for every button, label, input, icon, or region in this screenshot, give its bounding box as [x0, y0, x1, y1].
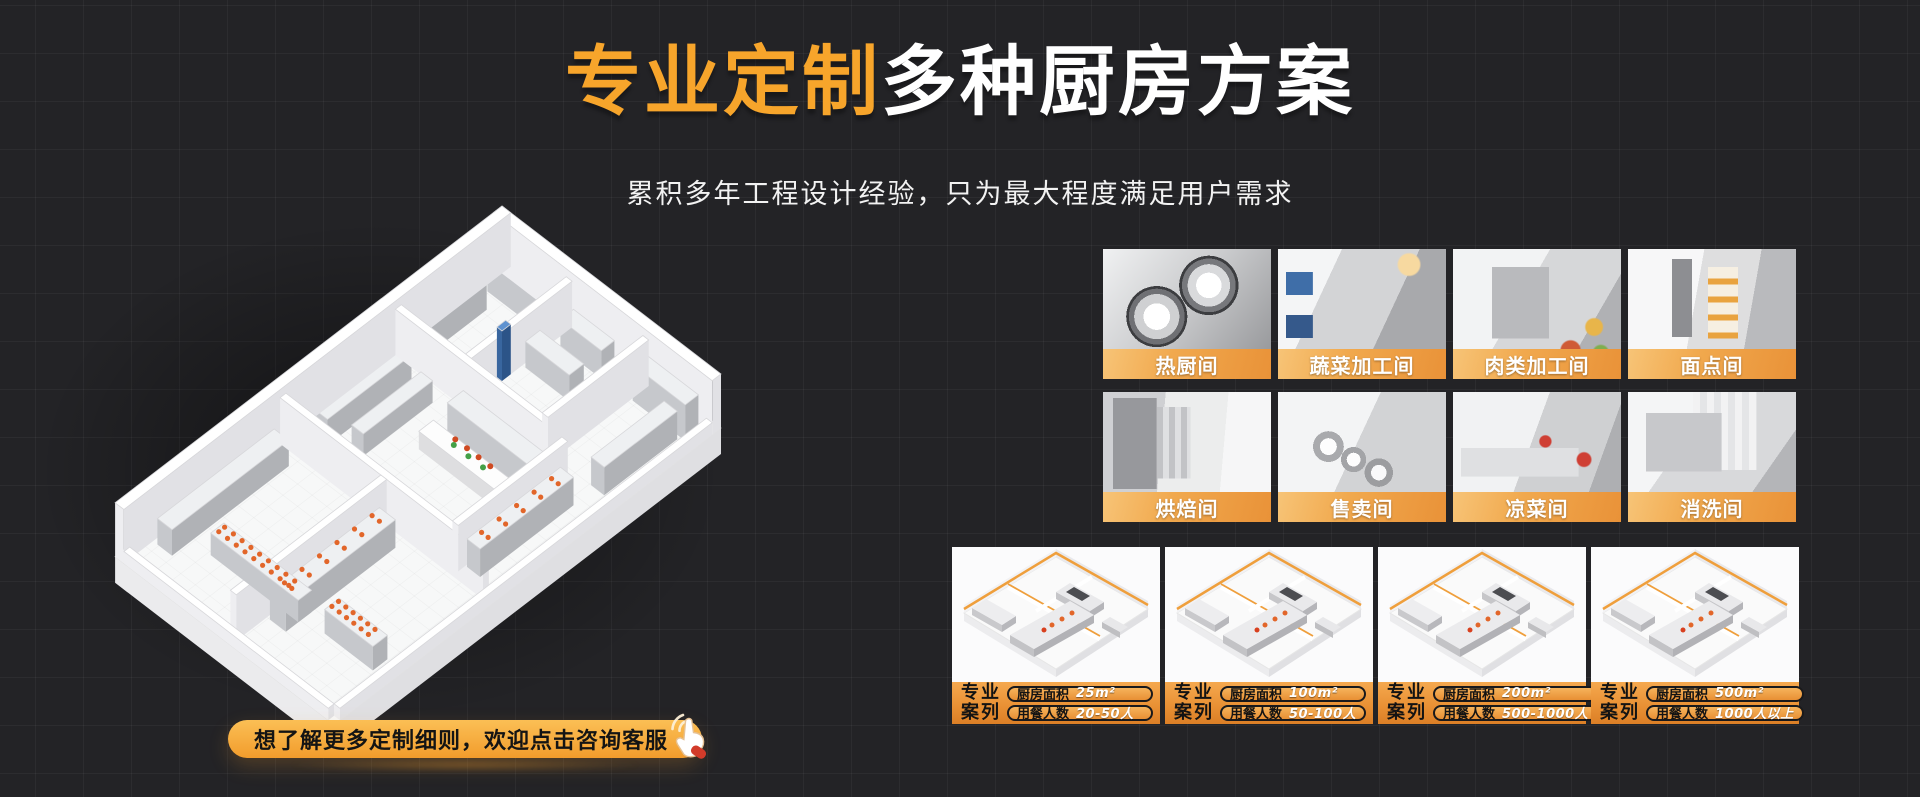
field-label: 厨房面积	[1230, 684, 1282, 703]
case-tag: 专业 案列	[1174, 683, 1214, 723]
field-label: 用餐人数	[1656, 703, 1708, 722]
case-illustration	[1165, 547, 1373, 682]
field-value: 25m²	[1076, 686, 1115, 701]
field-value: 50-100人	[1289, 703, 1356, 722]
diner-count-pill: 用餐人数 1000人以上	[1646, 705, 1804, 721]
case-bar: 专业 案列 厨房面积 100m² 用餐人数 50-100人	[1165, 682, 1373, 724]
field-label: 厨房面积	[1443, 684, 1495, 703]
room-tile-dishwashing: 消洗间	[1628, 392, 1796, 522]
diner-count-pill: 用餐人数 50-100人	[1220, 705, 1366, 721]
case-illustration	[1591, 547, 1799, 682]
field-value: 500-1000人	[1502, 703, 1588, 722]
case-bar: 专业 案列 厨房面积 200m² 用餐人数 500-1000人	[1378, 682, 1586, 724]
field-label: 用餐人数	[1230, 703, 1282, 722]
field-label: 用餐人数	[1017, 703, 1069, 722]
room-label: 消洗间	[1628, 492, 1796, 522]
room-label: 蔬菜加工间	[1278, 349, 1446, 379]
room-label: 面点间	[1628, 349, 1796, 379]
title-rest: 多种厨房方案	[881, 37, 1355, 126]
field-label: 厨房面积	[1017, 684, 1069, 703]
room-label: 热厨间	[1103, 349, 1271, 379]
field-label: 厨房面积	[1656, 684, 1708, 703]
contact-cta-label: 想了解更多定制细则，欢迎点击咨询客服	[254, 723, 668, 755]
field-value: 100m²	[1289, 686, 1338, 701]
case-gallery: 专业 案列 厨房面积 25m² 用餐人数 20-50人	[952, 547, 1799, 724]
room-tile-baking: 烘焙间	[1103, 392, 1271, 522]
room-label: 烘焙间	[1103, 492, 1271, 522]
case-tag: 专业 案列	[1600, 683, 1640, 723]
room-label: 凉菜间	[1453, 492, 1621, 522]
room-label: 肉类加工间	[1453, 349, 1621, 379]
case-tag: 专业 案列	[961, 683, 1001, 723]
field-label: 用餐人数	[1443, 703, 1495, 722]
room-gallery: 热厨间 蔬菜加工间 肉类加工间 面点间 烘焙间 售卖间 凉菜间 消洗间	[1103, 249, 1796, 522]
room-tile-serving: 售卖间	[1278, 392, 1446, 522]
room-label: 售卖间	[1278, 492, 1446, 522]
diner-count-pill: 用餐人数 20-50人	[1007, 705, 1153, 721]
room-tile-vegetable: 蔬菜加工间	[1278, 249, 1446, 379]
kitchen-floorplan-illustration	[92, 200, 740, 760]
kitchen-area-pill: 厨房面积 25m²	[1007, 686, 1153, 702]
kitchen-area-pill: 厨房面积 200m²	[1433, 686, 1598, 702]
case-illustration	[1378, 547, 1586, 682]
kitchen-area-pill: 厨房面积 500m²	[1646, 686, 1804, 702]
room-tile-pastry: 面点间	[1628, 249, 1796, 379]
case-card-100: 专业 案列 厨房面积 100m² 用餐人数 50-100人	[1165, 547, 1373, 724]
room-tile-hot-kitchen: 热厨间	[1103, 249, 1271, 379]
room-tile-meat: 肉类加工间	[1453, 249, 1621, 379]
case-card-500: 专业 案列 厨房面积 500m² 用餐人数 1000人以上	[1591, 547, 1799, 724]
case-illustration	[952, 547, 1160, 682]
page-title: 专业定制多种厨房方案	[0, 38, 1920, 125]
field-value: 500m²	[1715, 686, 1764, 701]
case-bar: 专业 案列 厨房面积 500m² 用餐人数 1000人以上	[1591, 682, 1799, 724]
title-highlight: 专业定制	[565, 37, 881, 126]
case-card-25: 专业 案列 厨房面积 25m² 用餐人数 20-50人	[952, 547, 1160, 724]
click-hand-icon	[662, 708, 718, 764]
room-tile-cold-dish: 凉菜间	[1453, 392, 1621, 522]
contact-cta-button[interactable]: 想了解更多定制细则，欢迎点击咨询客服	[228, 720, 702, 758]
case-bar: 专业 案列 厨房面积 25m² 用餐人数 20-50人	[952, 682, 1160, 724]
field-value: 1000人以上	[1715, 703, 1794, 722]
field-value: 200m²	[1502, 686, 1551, 701]
kitchen-area-pill: 厨房面积 100m²	[1220, 686, 1366, 702]
diner-count-pill: 用餐人数 500-1000人	[1433, 705, 1598, 721]
case-card-200: 专业 案列 厨房面积 200m² 用餐人数 500-1000人	[1378, 547, 1586, 724]
field-value: 20-50人	[1076, 703, 1134, 722]
banner: 专业定制多种厨房方案 累积多年工程设计经验，只为最大程度满足用户需求 想了解更多…	[0, 0, 1920, 797]
case-tag: 专业 案列	[1387, 683, 1427, 723]
